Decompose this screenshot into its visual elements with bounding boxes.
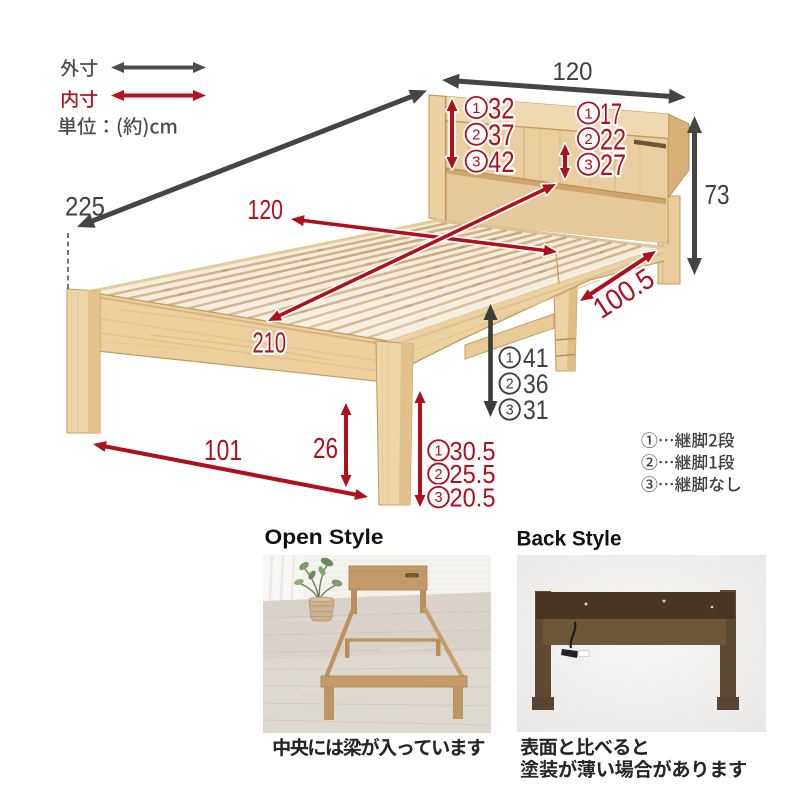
svg-text:Back Style: Back Style — [517, 527, 622, 551]
svg-text:120: 120 — [248, 194, 284, 225]
svg-text:26: 26 — [313, 433, 338, 465]
svg-text:2: 2 — [506, 377, 514, 393]
svg-text:101: 101 — [204, 435, 242, 467]
svg-text:1: 1 — [472, 100, 480, 117]
svg-text:2: 2 — [472, 127, 480, 144]
svg-text:Open Style: Open Style — [265, 525, 384, 549]
svg-text:1: 1 — [584, 105, 592, 122]
svg-text:2: 2 — [434, 467, 442, 483]
svg-text:225: 225 — [65, 192, 105, 222]
svg-text:31: 31 — [523, 395, 549, 425]
svg-text:1: 1 — [434, 444, 442, 460]
svg-text:1: 1 — [506, 351, 514, 367]
svg-text:20.5: 20.5 — [450, 482, 496, 512]
svg-text:3: 3 — [434, 490, 442, 506]
svg-text:3: 3 — [472, 153, 480, 170]
svg-text:120: 120 — [553, 58, 593, 86]
svg-text:210: 210 — [253, 328, 287, 360]
svg-text:2: 2 — [584, 131, 592, 148]
svg-text:27: 27 — [600, 149, 626, 182]
svg-text:3: 3 — [506, 403, 514, 419]
svg-text:73: 73 — [705, 179, 730, 210]
svg-text:42: 42 — [488, 146, 515, 179]
svg-text:3: 3 — [584, 157, 592, 174]
